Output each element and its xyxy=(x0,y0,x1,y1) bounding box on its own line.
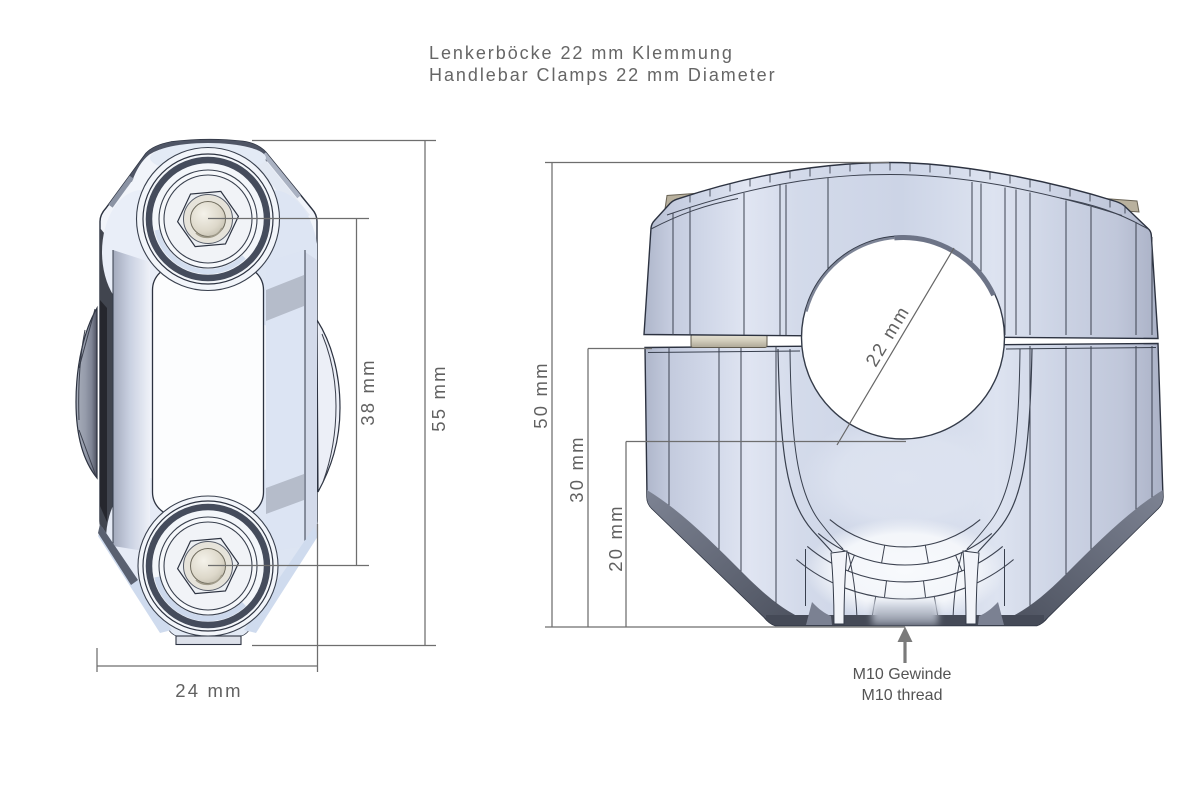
svg-text:M10 thread: M10 thread xyxy=(862,687,943,704)
svg-text:50 mm: 50 mm xyxy=(530,361,551,429)
svg-text:24 mm: 24 mm xyxy=(175,680,243,701)
svg-text:Handlebar Clamps 22 mm Diamete: Handlebar Clamps 22 mm Diameter xyxy=(429,65,777,85)
svg-text:Lenkerböcke 22 mm Klemmung: Lenkerböcke 22 mm Klemmung xyxy=(429,43,734,63)
svg-text:55 mm: 55 mm xyxy=(428,364,449,432)
svg-text:30 mm: 30 mm xyxy=(566,435,587,503)
svg-text:38 mm: 38 mm xyxy=(357,358,378,426)
svg-text:20 mm: 20 mm xyxy=(605,504,626,572)
svg-text:M10 Gewinde: M10 Gewinde xyxy=(853,666,952,683)
